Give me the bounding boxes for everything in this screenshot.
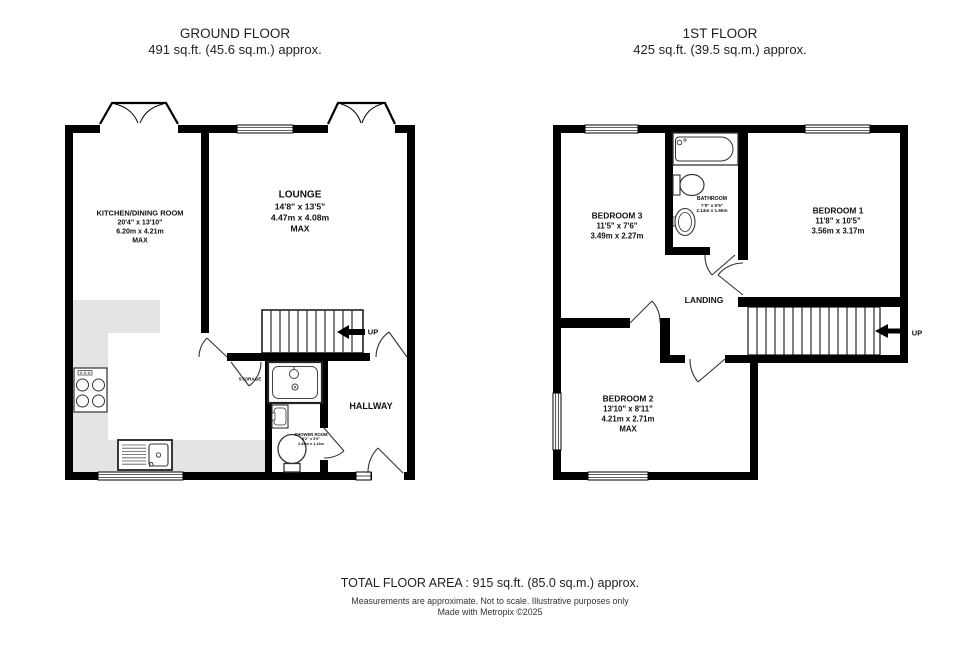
bedroom2-left-window-icon — [553, 393, 561, 450]
bedroom2-max: MAX — [602, 425, 655, 435]
shower-room-label: SHOWER ROOM 8'2" x 3'9" 2.49m x 1.14m — [294, 432, 327, 446]
bedroom1-door-arc — [718, 263, 743, 295]
storage-label: STORAGE — [239, 377, 262, 382]
kitchen-label: KITCHEN/DINING ROOM 20'4" x 13'10" 6.20m… — [96, 208, 183, 245]
first-staircase — [748, 307, 905, 355]
bedroom1-imperial: 11'8" x 10'5" — [812, 216, 865, 226]
bedroom2-imperial: 13'10" x 8'11" — [602, 404, 655, 414]
ground-up-label: UP — [368, 328, 378, 337]
lounge-label: LOUNGE 14'8" x 13'5" 4.47m x 4.08m MAX — [271, 189, 329, 236]
storage-door-arc — [231, 362, 261, 386]
shower-icon — [268, 362, 322, 403]
ground-floor-area: 491 sq.ft. (45.6 sq.m.) approx. — [58, 42, 412, 58]
landing-label: LANDING — [685, 295, 724, 305]
bedroom2-door-arc — [690, 359, 725, 382]
bathroom-name: BATHROOM — [696, 196, 727, 203]
first-up-label: UP — [912, 329, 922, 338]
bathroom-metric: 2.14m x 1.65m — [696, 208, 727, 214]
credit-text: Made with Metropix ©2025 — [0, 607, 980, 618]
bedroom2-metric: 4.21m x 2.71m — [602, 414, 655, 424]
front-door-arc — [368, 448, 403, 473]
bath-icon — [673, 133, 738, 165]
first-floor-area: 425 sq.ft. (39.5 sq.m.) approx. — [530, 42, 910, 58]
kitchen-name: KITCHEN/DINING ROOM — [96, 208, 183, 218]
first-floor-plan: BEDROOM 3 11'5" x 7'6" 3.49m x 2.27m BAT… — [545, 95, 935, 490]
lounge-name: LOUNGE — [271, 189, 329, 202]
storage-name: STORAGE — [239, 377, 262, 382]
ground-floor-drawing — [60, 95, 430, 490]
bedroom1-window-icon — [805, 125, 870, 133]
kitchen-sink-icon — [118, 440, 172, 470]
gf-basin-icon — [272, 405, 288, 428]
first-floor-title: 1ST FLOOR — [530, 26, 910, 42]
kitchen-max: MAX — [96, 236, 183, 245]
bedroom3-name: BEDROOM 3 — [591, 210, 644, 221]
bedroom3-door-arc — [630, 301, 660, 323]
lounge-metric: 4.47m x 4.08m — [271, 213, 329, 224]
bedroom3-metric: 3.49m x 2.27m — [591, 231, 644, 241]
footer: TOTAL FLOOR AREA : 915 sq.ft. (85.0 sq.m… — [0, 576, 980, 619]
hallway-window-icon — [356, 472, 371, 480]
bay-window-left-icon — [100, 103, 178, 124]
lounge-window-icon — [237, 125, 293, 133]
kitchen-window-icon — [98, 472, 183, 480]
first-floor-header: 1ST FLOOR 425 sq.ft. (39.5 sq.m.) approx… — [530, 26, 910, 58]
lounge-hall-door-arc — [376, 332, 407, 357]
bay-window-right-icon — [328, 103, 395, 124]
bedroom3-label: BEDROOM 3 11'5" x 7'6" 3.49m x 2.27m — [591, 210, 644, 241]
landing-name: LANDING — [685, 295, 724, 305]
ground-floor-plan: KITCHEN/DINING ROOM 20'4" x 13'10" 6.20m… — [60, 95, 430, 490]
disclaimer-text: Measurements are approximate. Not to sca… — [0, 596, 980, 607]
bedroom2-bottom-window-icon — [588, 472, 648, 480]
stove-icon — [74, 368, 107, 412]
kitchen-metric: 6.20m x 4.21m — [96, 227, 183, 236]
total-floor-area: TOTAL FLOOR AREA : 915 sq.ft. (85.0 sq.m… — [0, 576, 980, 591]
bedroom3-window-icon — [585, 125, 638, 133]
staircase — [262, 310, 365, 353]
bedroom2-name: BEDROOM 2 — [602, 393, 655, 404]
bathroom-label: BATHROOM 7'0" x 5'5" 2.14m x 1.65m — [696, 196, 727, 214]
lounge-max: MAX — [271, 224, 329, 235]
hallway-label: HALLWAY — [349, 401, 392, 411]
ground-floor-title: GROUND FLOOR — [58, 26, 412, 42]
bedroom1-label: BEDROOM 1 11'8" x 10'5" 3.56m x 3.17m — [812, 205, 865, 236]
shower-room-metric: 2.49m x 1.14m — [294, 442, 327, 447]
kitchen-door-arc — [199, 338, 227, 357]
bedroom1-metric: 3.56m x 3.17m — [812, 226, 865, 236]
ff-basin-icon — [673, 209, 695, 236]
bedroom3-imperial: 11'5" x 7'6" — [591, 221, 644, 231]
bedroom2-label: BEDROOM 2 13'10" x 8'11" 4.21m x 2.71m M… — [602, 393, 655, 434]
bedroom1-name: BEDROOM 1 — [812, 205, 865, 216]
hallway-name: HALLWAY — [349, 401, 392, 411]
lounge-imperial: 14'8" x 13'5" — [271, 202, 329, 213]
ground-floor-header: GROUND FLOOR 491 sq.ft. (45.6 sq.m.) app… — [58, 26, 412, 58]
kitchen-imperial: 20'4" x 13'10" — [96, 218, 183, 227]
ff-toilet-icon — [673, 175, 704, 196]
